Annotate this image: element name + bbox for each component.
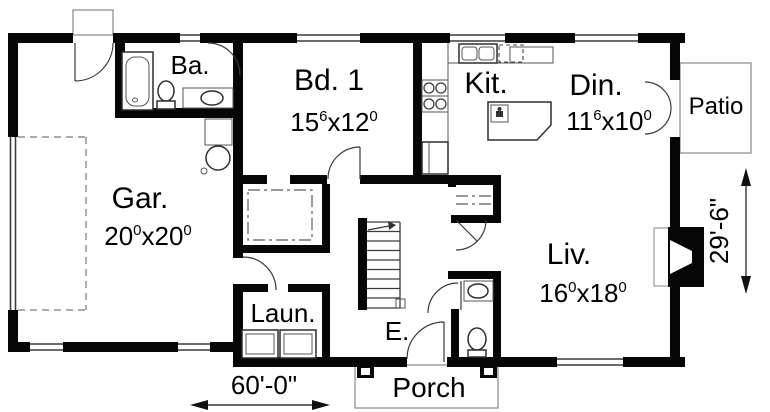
dishwasher-icon: [499, 45, 523, 62]
living-dimensions: 160x180: [539, 278, 627, 308]
bedroom-closet: [248, 190, 312, 240]
furnace-icon: [205, 119, 232, 145]
bathtub-icon: [122, 52, 153, 110]
stove-icon: [422, 80, 448, 112]
bathroom-label: Ba.: [170, 50, 209, 80]
depth-dimension: 29'-6": [704, 168, 751, 294]
patio-label: Patio: [689, 93, 744, 120]
water-heater-icon: [201, 146, 230, 174]
porch-label: Porch: [392, 372, 465, 403]
bedroom1-dimensions: 156x120: [290, 107, 378, 137]
powder-door-arc: [428, 281, 461, 313]
toilet-icon: [157, 81, 175, 109]
bedroom-door-arc: [328, 147, 360, 179]
stairs: [367, 221, 405, 308]
width-dimension-text: 60'-0": [231, 370, 297, 400]
powder-sink-icon: [464, 281, 493, 301]
washer-icon: [242, 330, 278, 358]
dining-dimensions: 116x100: [566, 106, 652, 136]
kitchen-sink-icon: [459, 44, 497, 63]
floor-plan-drawing: Ba. Bd. 1 156x120 Kit. Din. 116x100 Pati…: [0, 0, 770, 412]
fireplace-icon: [654, 227, 704, 287]
garage-dimensions: 200x200: [104, 221, 192, 251]
bedroom1-label: Bd. 1: [294, 64, 364, 97]
depth-dimension-text: 29'-6": [704, 198, 734, 264]
front-door-arc: [407, 322, 444, 362]
coat-closet: [456, 196, 491, 204]
kitchen-island: [488, 102, 551, 140]
living-label: Liv.: [547, 238, 591, 271]
kitchen-label: Kit.: [464, 67, 507, 100]
living-door-arc: [456, 220, 486, 250]
back-door-arc: [75, 43, 113, 81]
laundry-label: Laun.: [250, 298, 315, 328]
floor-plan: Ba. Bd. 1 156x120 Kit. Din. 116x100 Pati…: [0, 0, 770, 412]
powder-toilet-icon: [468, 328, 486, 357]
entry-label: E.: [385, 316, 410, 346]
stoop: [73, 10, 113, 35]
bathroom-sink-icon: [183, 88, 233, 108]
width-dimension: 60'-0": [190, 370, 330, 410]
dining-label: Din.: [569, 69, 622, 102]
dryer-icon: [280, 330, 316, 358]
garage-label: Gar.: [112, 182, 169, 215]
refrigerator-icon: [422, 142, 448, 174]
garage-door: [11, 137, 87, 310]
